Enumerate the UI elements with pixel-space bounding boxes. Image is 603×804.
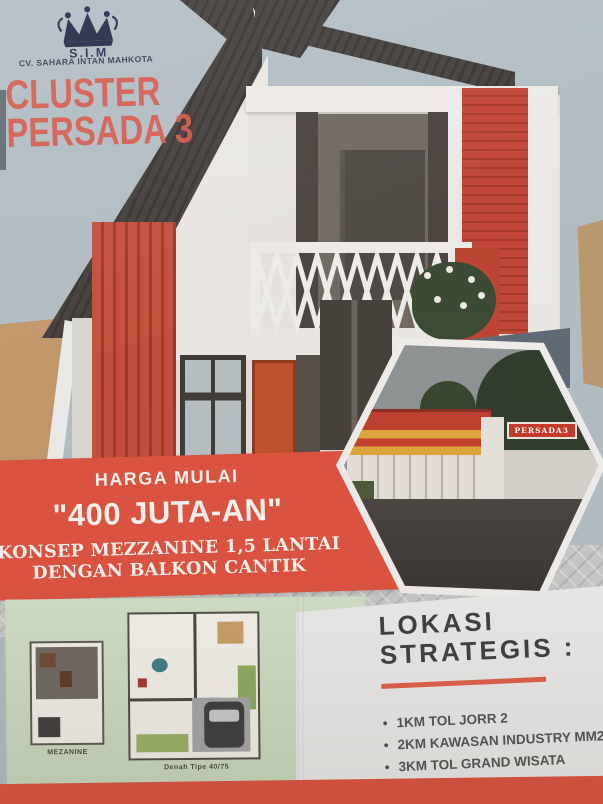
photo-background-right bbox=[574, 220, 603, 388]
location-panel: LOKASI STRATEGIS : 1KM TOL JORR 2 2KM KA… bbox=[296, 586, 603, 804]
title-line-2: PERSADA 3 bbox=[6, 110, 193, 153]
shop-awning bbox=[347, 430, 489, 456]
main-plan-label: Denah Tipe 40/75 bbox=[137, 763, 257, 771]
dining-table bbox=[152, 658, 168, 672]
page-title: CLUSTER PERSADA 3 bbox=[5, 71, 240, 153]
bedroom-floor bbox=[217, 621, 243, 643]
mezzanine-floor-plan bbox=[30, 641, 105, 746]
company-logo: S.I.M bbox=[25, 2, 151, 62]
price-value: "400 JUTA-AN" bbox=[0, 490, 344, 536]
price-label: HARGA MULAI bbox=[0, 463, 343, 494]
garden-strip bbox=[136, 734, 188, 752]
location-content: LOKASI STRATEGIS : 1KM TOL JORR 2 2KM KA… bbox=[378, 601, 603, 804]
bed bbox=[38, 717, 60, 737]
gate-sign: PERSADA3 bbox=[507, 422, 577, 439]
furniture bbox=[60, 671, 72, 687]
mezzanine-plan-label: MEZANINE bbox=[20, 749, 114, 757]
main-floor-plan bbox=[127, 611, 260, 760]
paper-fold-line bbox=[297, 596, 304, 804]
price-banner-content: HARGA MULAI "400 JUTA-AN" KONSEP MEZZANI… bbox=[0, 463, 345, 585]
red-divider bbox=[381, 677, 546, 689]
gate-pillar bbox=[481, 417, 504, 504]
car-windshield bbox=[209, 710, 239, 722]
furniture bbox=[40, 653, 56, 667]
car bbox=[204, 701, 244, 747]
brick-frame-right bbox=[528, 88, 558, 338]
flyer-photo: HARGA MULAI "400 JUTA-AN" KONSEP MEZZANI… bbox=[0, 0, 603, 804]
plan-wall bbox=[193, 614, 197, 700]
chair bbox=[138, 678, 147, 687]
